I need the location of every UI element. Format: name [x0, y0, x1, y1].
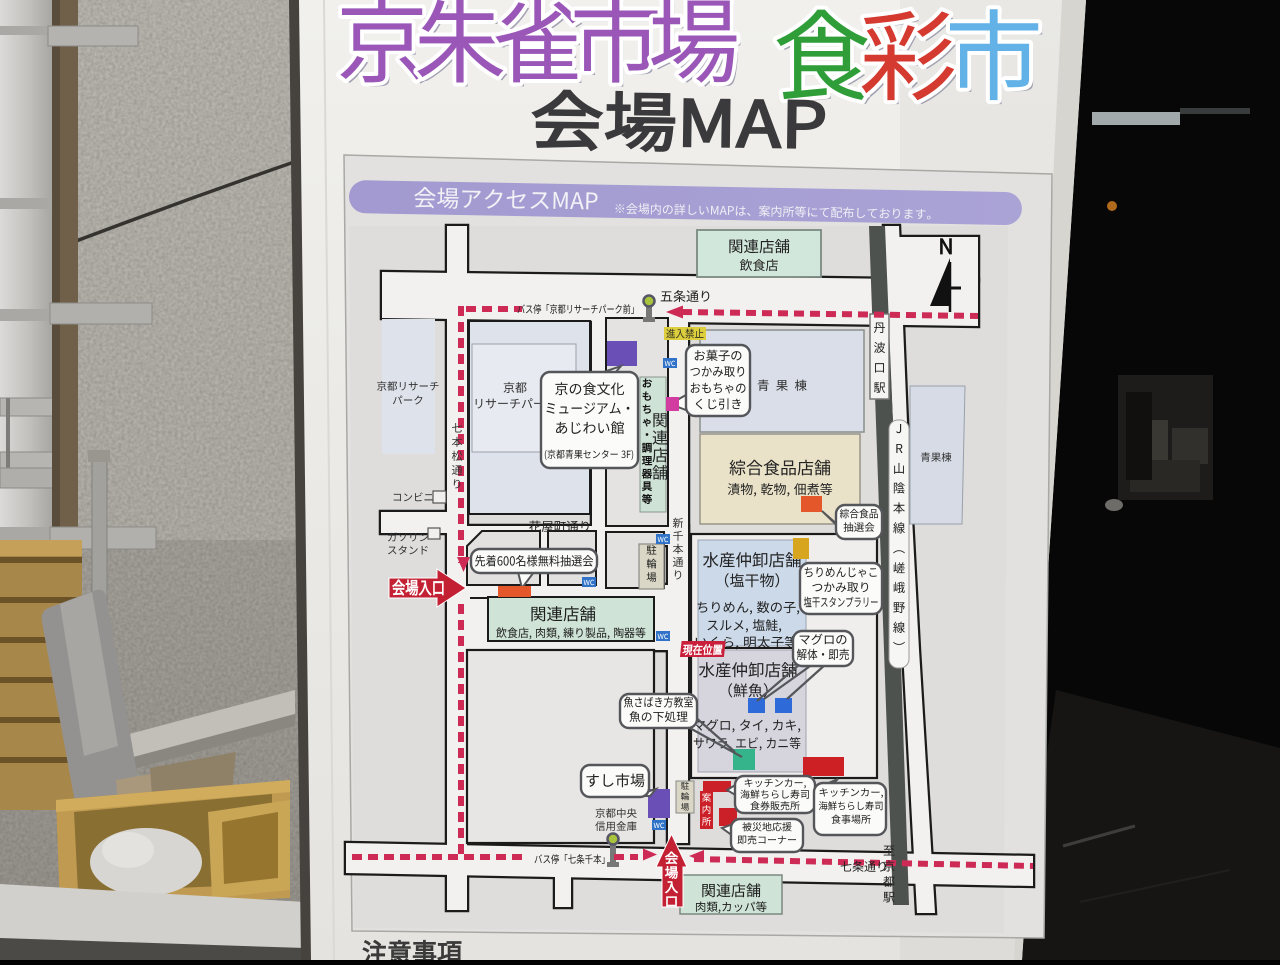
svg-text:先着600名様無料抽選会: 先着600名様無料抽選会	[475, 551, 594, 570]
svg-text:（塩干物）: （塩干物）	[714, 570, 789, 591]
svg-text:関連店舗: 関連店舗	[701, 880, 761, 901]
svg-text:会場MAP: 会場MAP	[530, 71, 828, 167]
svg-text:会場アクセスMAP: 会場アクセスMAP	[413, 179, 599, 216]
svg-text:バス停「京都リサーチパーク前」: バス停「京都リサーチパーク前」	[517, 302, 639, 317]
svg-text:WC: WC	[654, 821, 666, 831]
svg-text:ミュージアム・: ミュージアム・	[545, 399, 635, 419]
svg-text:波: 波	[873, 339, 885, 356]
svg-text:あじわい館: あじわい館	[555, 418, 625, 438]
svg-text:塩干スタンプラリー: 塩干スタンプラリー	[804, 594, 879, 611]
svg-text:青果棟: 青果棟	[920, 450, 952, 465]
svg-text:︵: ︵	[893, 538, 905, 556]
svg-text:進入禁止: 進入禁止	[666, 327, 704, 342]
svg-text:本: 本	[893, 499, 905, 517]
svg-text:飲食店: 飲食店	[739, 255, 778, 274]
svg-text:抽選会: 抽選会	[843, 520, 875, 535]
svg-text:五条通り: 五条通り	[660, 286, 712, 305]
svg-text:ちりめん, 数の子,: ちりめん, 数の子,	[696, 597, 800, 616]
svg-text:WC: WC	[658, 535, 670, 545]
svg-text:関連店舗: 関連店舗	[728, 235, 790, 257]
svg-text:山: 山	[893, 459, 905, 477]
svg-text:彩: 彩	[859, 0, 957, 121]
svg-text:︶: ︶	[893, 638, 905, 656]
svg-text:スタンド: スタンド	[387, 543, 429, 558]
svg-text:WC: WC	[665, 359, 677, 369]
svg-text:場: 場	[646, 570, 657, 585]
svg-text:京: 京	[883, 858, 895, 875]
svg-text:至: 至	[883, 842, 895, 859]
svg-text:コンビニ: コンビニ	[392, 490, 434, 505]
svg-text:関連店舗: 関連店舗	[530, 601, 596, 625]
svg-text:解体・即売: 解体・即売	[797, 645, 850, 663]
svg-text:京都: 京都	[503, 379, 527, 396]
svg-text:すし市場: すし市場	[585, 770, 645, 791]
svg-text:N: N	[938, 231, 953, 261]
svg-text:り: り	[452, 476, 463, 492]
svg-text:魚の下処理: 魚の下処理	[629, 708, 688, 725]
svg-text:信用金庫: 信用金庫	[595, 819, 637, 834]
svg-text:食事場所: 食事場所	[831, 811, 871, 826]
svg-text:水産仲卸店舗: 水産仲卸店舗	[699, 657, 798, 681]
svg-text:七条通り: 七条通り	[840, 858, 888, 875]
svg-text:WC: WC	[584, 578, 596, 588]
svg-text:水産仲卸店舗: 水産仲卸店舗	[703, 547, 802, 571]
svg-text:R: R	[895, 439, 903, 457]
svg-text:青 果 棟: 青 果 棟	[757, 375, 808, 394]
svg-text:都: 都	[883, 873, 895, 890]
svg-text:綜合食品店舗: 綜合食品店舗	[729, 454, 831, 479]
svg-text:口: 口	[665, 891, 679, 911]
svg-text:WC: WC	[658, 632, 670, 642]
svg-text:飲食店, 肉類, 練り製品, 陶器等: 飲食店, 肉類, 練り製品, 陶器等	[496, 625, 646, 641]
svg-text:陰: 陰	[893, 479, 905, 497]
svg-text:即売コーナー: 即売コーナー	[737, 832, 797, 847]
svg-text:り: り	[673, 567, 684, 583]
svg-text:線: 線	[893, 519, 905, 537]
svg-text:市: 市	[945, 0, 1043, 121]
svg-text:丹: 丹	[873, 319, 885, 336]
svg-text:口: 口	[873, 359, 885, 376]
svg-text:(京都青果センター 3F): (京都青果センター 3F)	[544, 446, 634, 461]
svg-text:駅: 駅	[883, 889, 895, 906]
svg-text:等: 等	[641, 492, 653, 507]
svg-text:野: 野	[893, 598, 905, 616]
svg-text:J: J	[896, 419, 903, 437]
svg-text:会場入口: 会場入口	[392, 574, 445, 599]
svg-text:京都リサーチ: 京都リサーチ	[377, 379, 440, 394]
svg-text:花屋町通り: 花屋町通り	[529, 516, 592, 535]
svg-text:駅: 駅	[873, 379, 885, 396]
svg-text:肉類,カッパ等: 肉類,カッパ等	[695, 899, 767, 915]
svg-text:舗: 舗	[652, 460, 668, 484]
svg-text:マグロ, タイ, カキ,: マグロ, タイ, カキ,	[693, 715, 801, 734]
svg-text:嵯: 嵯	[893, 558, 905, 576]
svg-text:場: 場	[681, 801, 690, 813]
svg-text:パーク: パーク	[392, 393, 424, 408]
svg-text:注意事項: 注意事項	[362, 932, 463, 960]
svg-text:京の食文化: 京の食文化	[555, 379, 625, 399]
svg-text:線: 線	[893, 618, 905, 636]
svg-text:峨: 峨	[893, 578, 905, 596]
svg-text:漬物, 乾物, 佃煮等: 漬物, 乾物, 佃煮等	[727, 479, 832, 498]
svg-text:食券販売所: 食券販売所	[750, 798, 800, 813]
svg-text:バス停「七条千本」: バス停「七条千本」	[534, 852, 610, 867]
svg-text:くじ引き: くじ引き	[693, 395, 742, 413]
svg-text:現在位置: 現在位置	[682, 642, 724, 658]
svg-text:所: 所	[702, 814, 712, 828]
